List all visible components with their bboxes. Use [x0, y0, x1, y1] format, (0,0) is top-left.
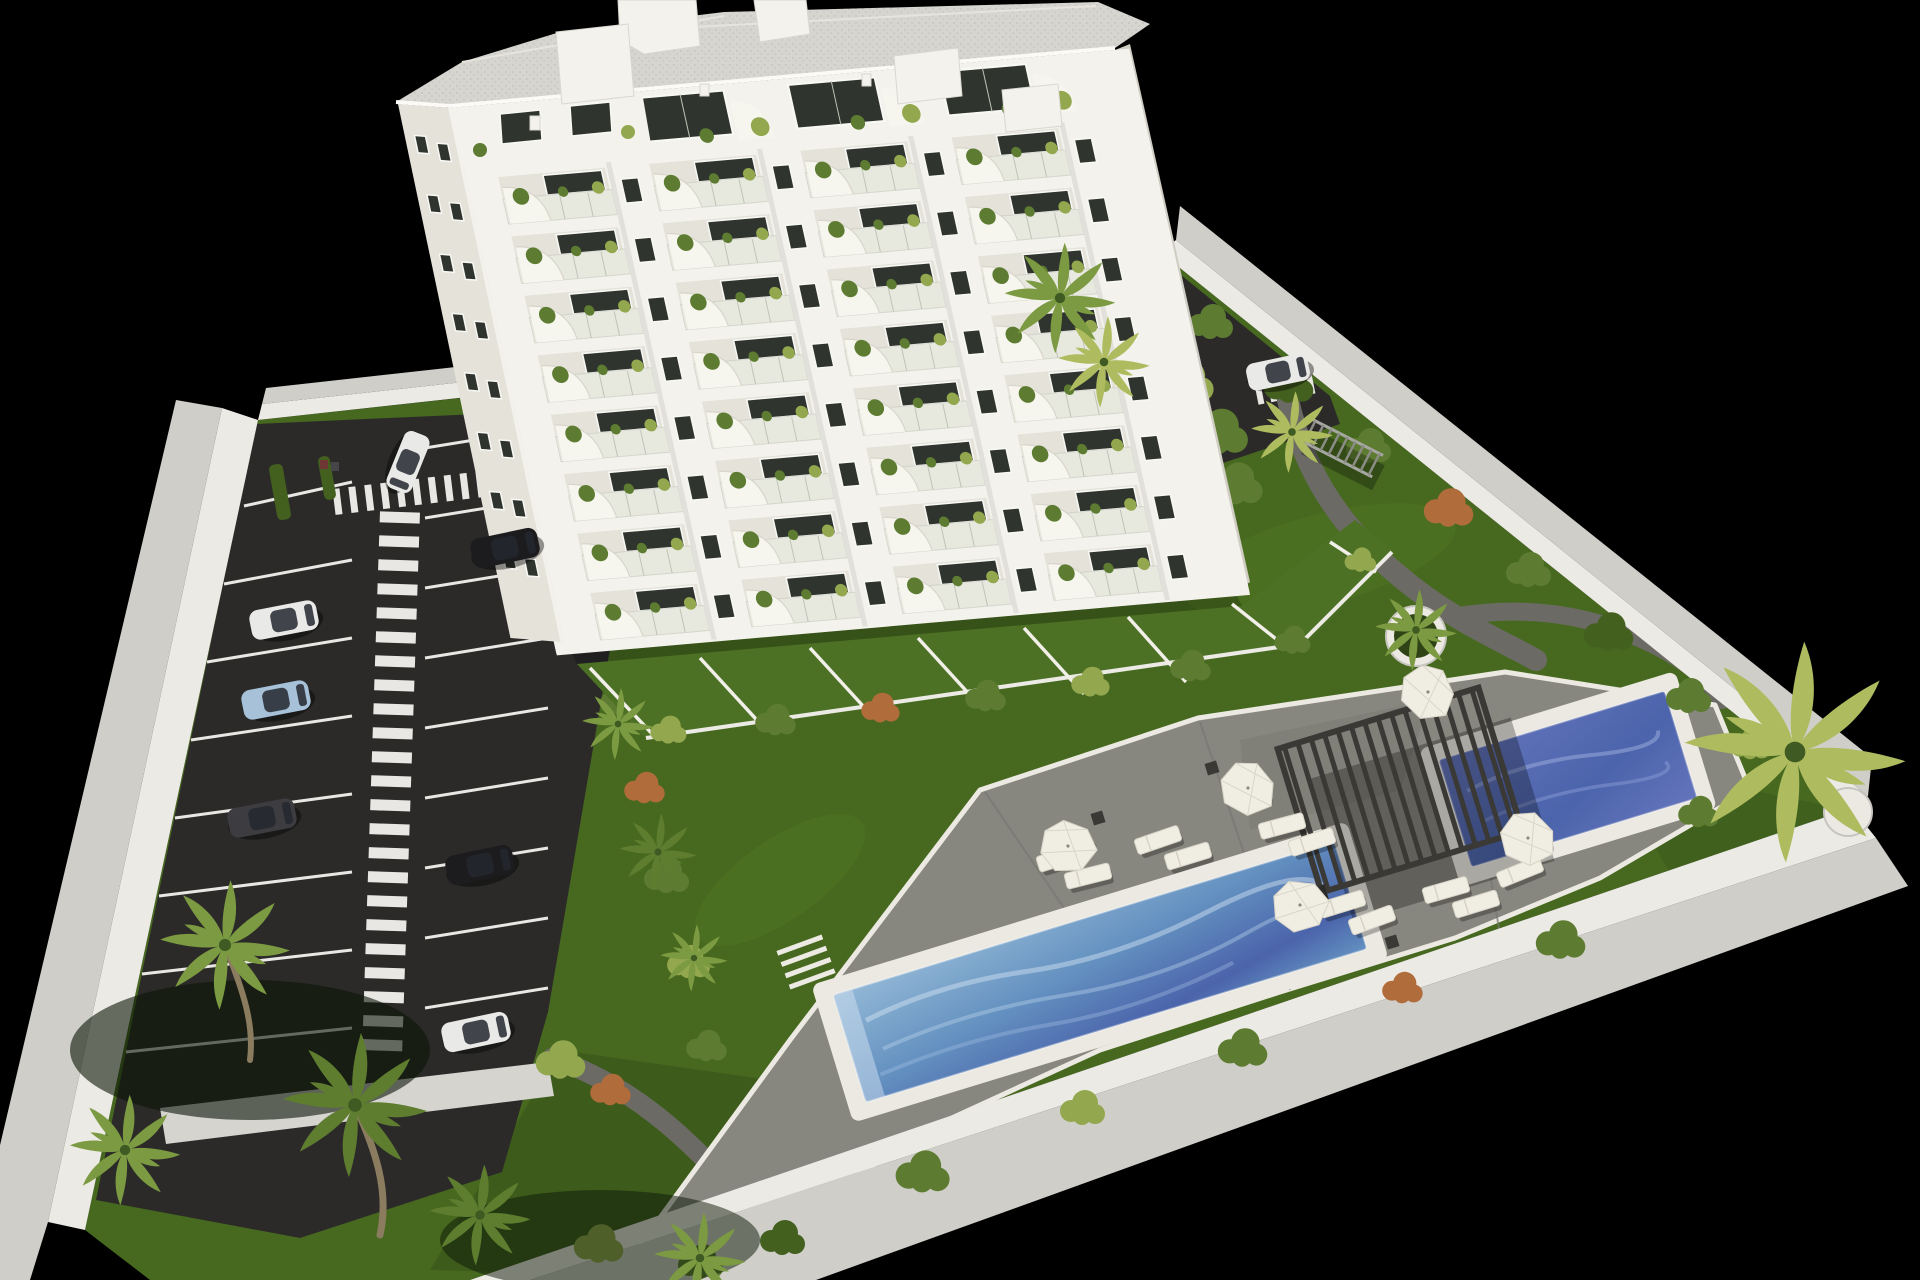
- waste-bin: [320, 460, 328, 469]
- roof-bulkhead: [894, 48, 962, 104]
- roof-chimney: [530, 116, 540, 130]
- architectural-render-image: Aerial 3D architectural rendering of a r…: [0, 0, 1920, 1280]
- roof-chimney: [862, 74, 871, 86]
- roof-bulkhead: [1002, 84, 1062, 132]
- roof-bulkhead: [556, 24, 634, 104]
- waste-bin: [331, 462, 339, 471]
- apartment-building: [396, 0, 1250, 664]
- pedestrian-zebra-walkway: [382, 512, 400, 1056]
- roof-chimney: [700, 84, 709, 96]
- roof-bulkhead: [754, 0, 810, 42]
